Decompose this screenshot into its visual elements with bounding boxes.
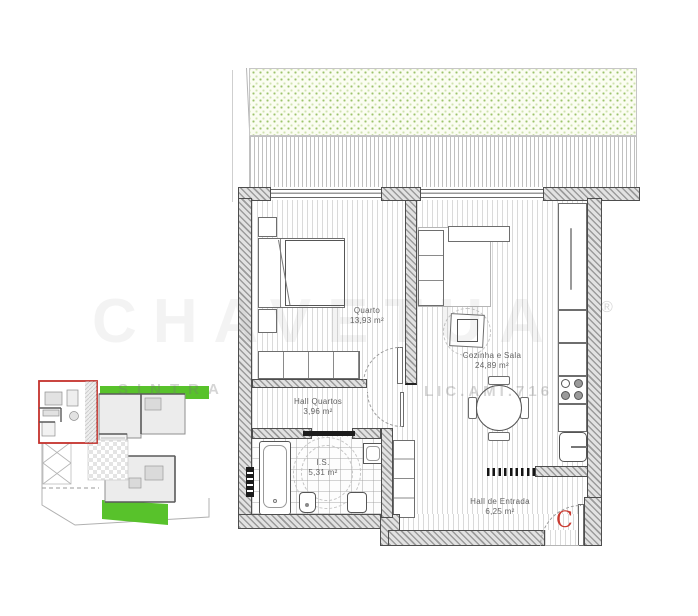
key-c-wardrobe (67, 390, 78, 406)
room-name: I.S. (316, 458, 329, 467)
living-window (421, 189, 543, 198)
key-furniture (145, 398, 161, 410)
dining-chair-bottom (488, 432, 510, 441)
key-c-bed (45, 392, 62, 405)
floor-plan-canvas: CHAVETUA ® SINTRA LIC.AMI.716 (0, 0, 698, 616)
kitchen-cabinet-cell-2 (558, 343, 587, 376)
stove-burner-1 (561, 379, 570, 388)
key-furniture (129, 478, 141, 488)
room-area: 24,89 m² (475, 361, 509, 370)
wall-corner-bottom-right (584, 497, 602, 546)
console-under-window (448, 226, 510, 242)
bathroom-sliding-door (303, 431, 355, 436)
key-c-wall-right (85, 381, 97, 443)
hall-closet (393, 440, 415, 518)
wall-kitchen-hall (535, 466, 588, 477)
wardrobe (258, 351, 360, 379)
wall-top-pier-middle (381, 187, 421, 201)
key-garden-bottom (102, 500, 168, 525)
room-label-cozinha-sala: Cozinha e Sala 24,89 m² (422, 351, 562, 371)
plot-boundary-line-left (232, 70, 233, 202)
wall-right (587, 198, 602, 498)
kitchen-sink-faucet (571, 446, 588, 448)
unit-letter-badge: C (556, 508, 573, 533)
entrance-threshold-line (545, 545, 579, 546)
room-name: Quarto (354, 306, 380, 315)
room-label-hall-quartos: Hall Quartos 3,96 m² (248, 397, 388, 417)
room-name: Hall de Entrada (470, 497, 530, 506)
dining-table (476, 385, 522, 431)
nightstand-top (258, 217, 277, 237)
stove-burner-2 (574, 379, 583, 388)
room-area: 5,31 m² (308, 468, 337, 477)
key-unit-b (99, 394, 141, 438)
key-c-bathroom (42, 422, 55, 436)
dining-chair-top (488, 376, 510, 385)
wall-bathroom-top-right (352, 428, 381, 439)
room-label-hall-entrada: Hall de Entrada 6,25 m² (430, 497, 570, 517)
kitchen-tall-cabinet (558, 203, 587, 310)
wall-bottom-bathroom (238, 514, 388, 529)
bed-blanket (285, 240, 345, 306)
nightstand-bottom (258, 309, 277, 333)
wall-wardrobe-back (252, 379, 367, 388)
sofa (418, 230, 444, 306)
room-name: Cozinha e Sala (463, 351, 521, 360)
key-plan-svg (33, 378, 213, 573)
room-area: 13,93 m² (350, 316, 384, 325)
room-label-quarto: Quarto 13,93 m² (297, 306, 437, 326)
kitchen-cabinet-cell-1 (558, 310, 587, 343)
room-name: Hall Quartos (294, 397, 342, 406)
key-ramp (43, 442, 71, 484)
watermark-registered-icon: ® (601, 299, 613, 317)
hall-grille (487, 468, 535, 476)
key-c-table (70, 412, 79, 421)
stove-burner-3 (561, 391, 570, 400)
key-furniture (145, 466, 163, 480)
room-area: 3,96 m² (303, 407, 332, 416)
room-area: 6,25 m² (485, 507, 514, 516)
key-plan (33, 378, 213, 573)
toilet-drain (305, 503, 309, 507)
stove-burner-4 (574, 391, 583, 400)
terrace-deck (249, 136, 637, 187)
key-c-sofa (43, 410, 59, 416)
wall-bottom-hall (388, 530, 545, 546)
room-label-is: I.S. 5,31 m² (253, 458, 393, 478)
wall-partition-bedroom (405, 200, 417, 385)
bidet (347, 492, 367, 513)
garden-area (249, 68, 637, 136)
kitchen-counter-cell (558, 404, 587, 432)
kitchen-cabinet-handle (570, 228, 572, 290)
bedroom-window (271, 189, 381, 198)
coffee-table-top (457, 319, 478, 342)
key-courtyard (88, 440, 128, 480)
bathtub-drain (273, 499, 277, 503)
